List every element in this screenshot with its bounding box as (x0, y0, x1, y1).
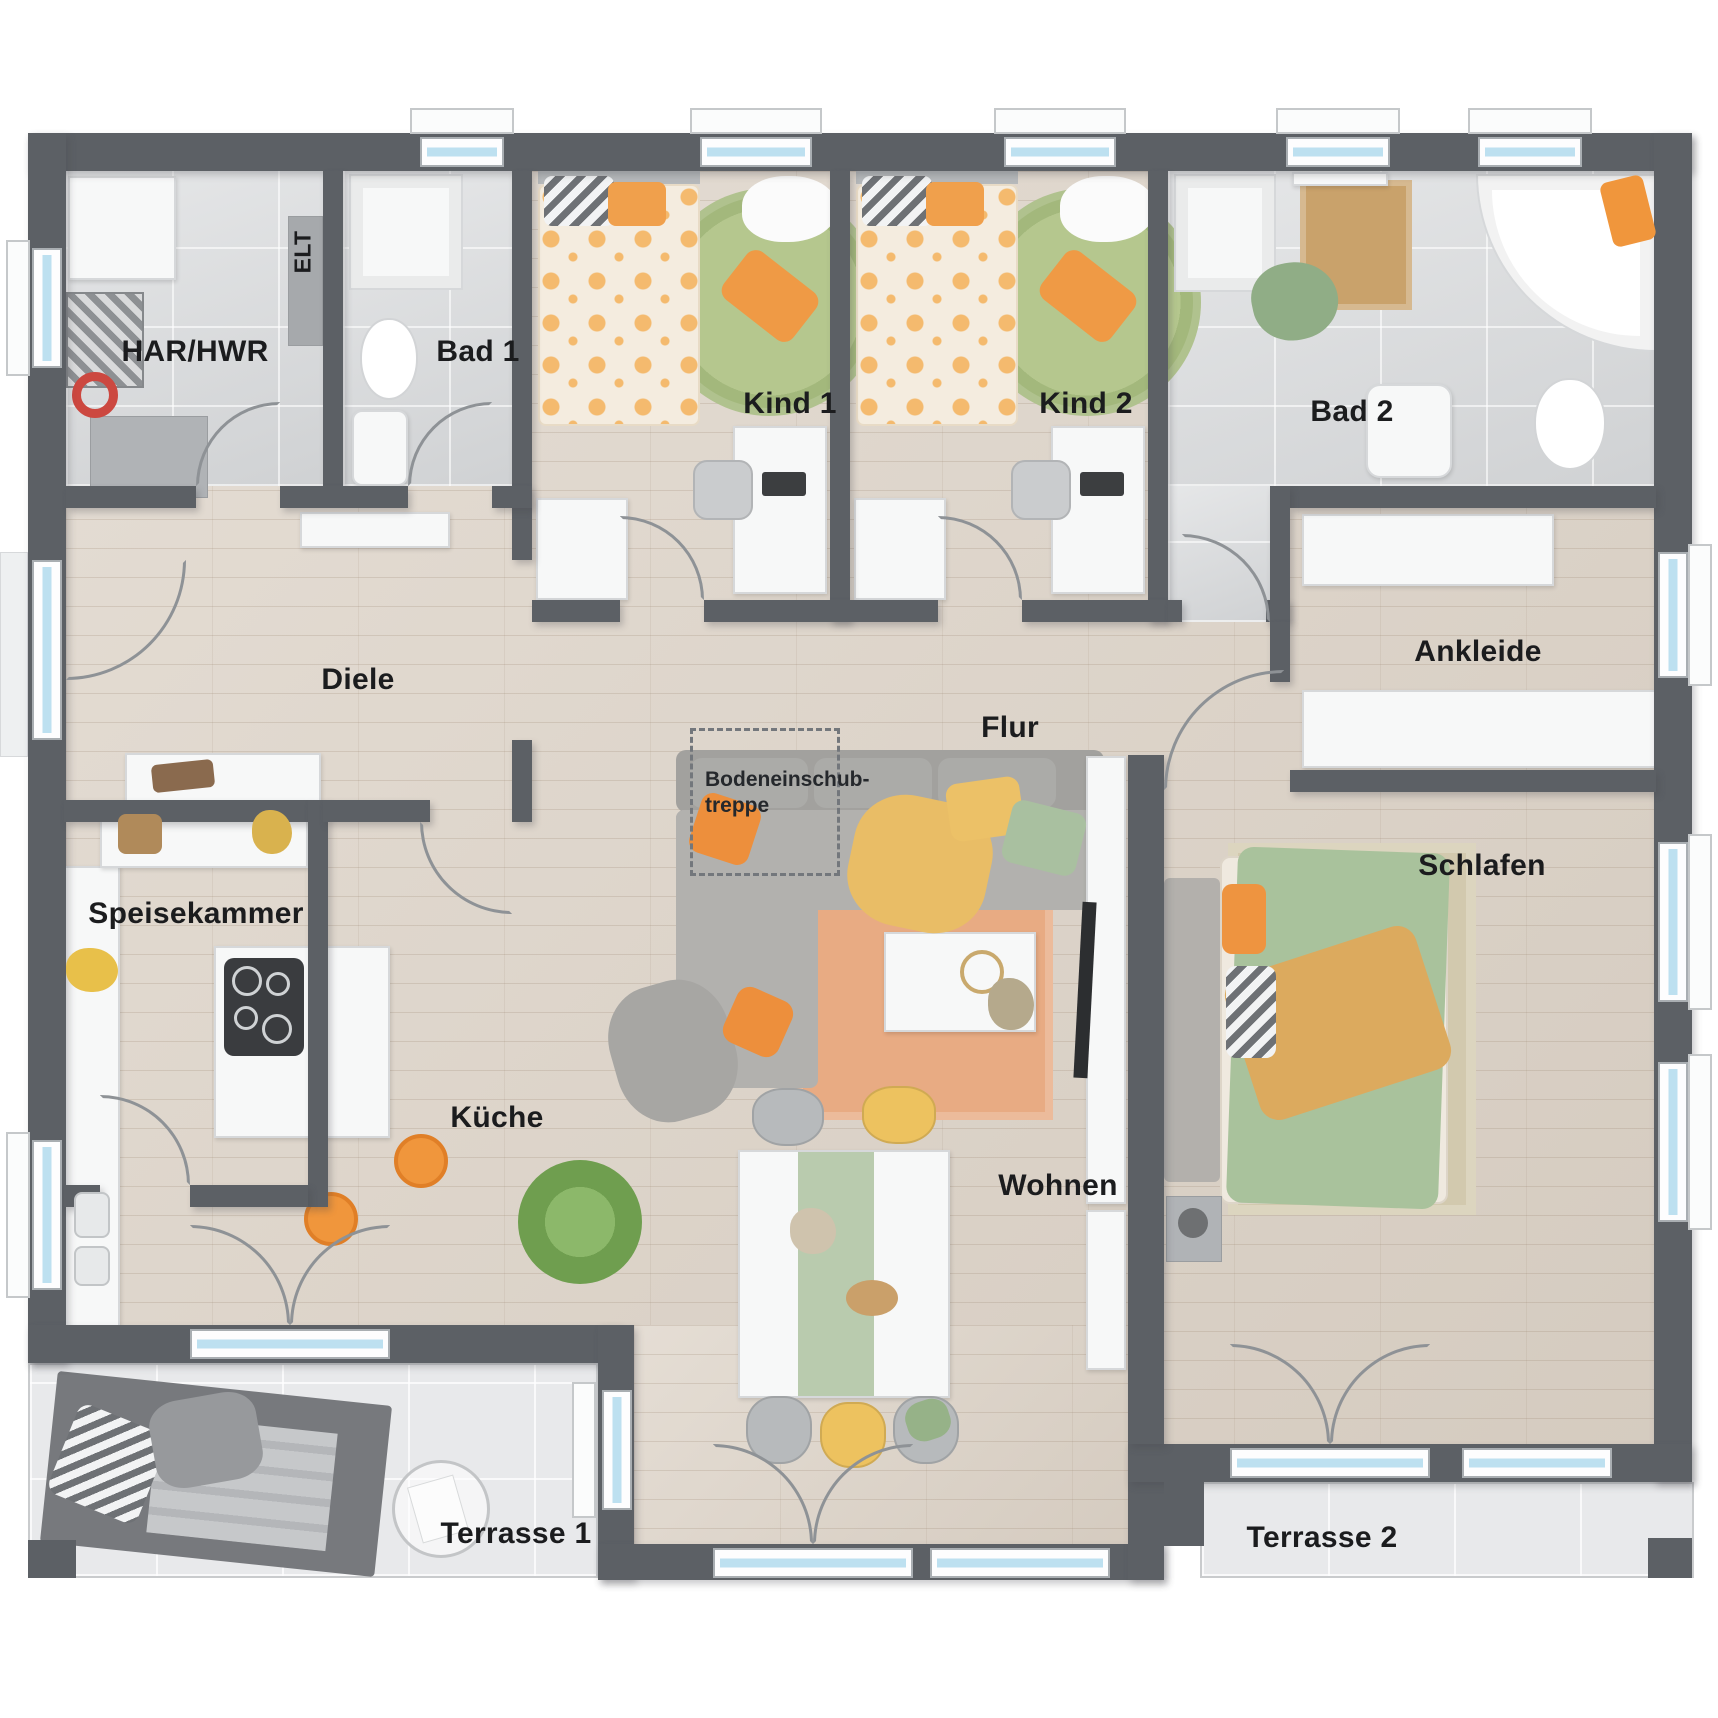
table-bowl (846, 1280, 898, 1316)
floor-plan: Bodeneinschub- treppe HAR/HWR ELT Bad 1 … (0, 0, 1718, 1718)
side-desk-wohnen (1086, 1210, 1126, 1370)
window-sill-bad2 (1276, 108, 1400, 134)
entry-porch (0, 552, 28, 757)
wall-bad2-bottom (1290, 486, 1656, 508)
dining-chair-gray-top (752, 1088, 824, 1146)
wall-hwr-bottom-a (66, 486, 196, 508)
wall-kind-bottom-a (532, 600, 620, 622)
room-label-diele: Diele (321, 663, 394, 697)
palm-plant (518, 1160, 642, 1284)
desk-chair-kind2 (1011, 460, 1071, 520)
french-door-kueche (190, 1329, 390, 1359)
wall-diele-stub (512, 740, 532, 822)
terrace1-corner-block (28, 1540, 76, 1578)
wall-vestibule-right (1270, 486, 1290, 622)
wall-kitchen-top (323, 800, 430, 822)
toilet-bad1 (360, 318, 418, 400)
fruit-bowl (66, 948, 118, 992)
shower-bad1 (349, 174, 463, 290)
plant-nightstand (1178, 1208, 1208, 1238)
keyboard-kind1 (762, 472, 806, 496)
window-sill-hwr (6, 240, 30, 376)
room-label-flur: Flur (981, 711, 1039, 745)
window-sill-kind2 (994, 108, 1126, 134)
window-bumpout-left (602, 1390, 632, 1510)
burner-1 (232, 966, 262, 996)
window-sill-bumpout-left (572, 1382, 596, 1518)
wall-outer-right (1654, 133, 1692, 1482)
terrace2-corner-block-right (1648, 1538, 1692, 1578)
room-label-terrasse1: Terrasse 1 (441, 1517, 592, 1551)
room-label-bad1: Bad 1 (436, 335, 519, 369)
bed-headboard-schlafen (1164, 878, 1220, 1182)
window-sill-kueche (6, 1132, 30, 1298)
room-label-bad2: Bad 2 (1310, 395, 1393, 429)
wall-bad1-bottom (492, 486, 532, 508)
window-sill-schlafen-1 (1688, 834, 1712, 1010)
pillow-orange-kind1 (608, 182, 666, 226)
diele-bench (300, 512, 450, 548)
pillow-orange-schlafen (1222, 884, 1266, 954)
pillow-striped-kind1 (544, 176, 614, 226)
wall-hwr-bad1 (323, 171, 343, 486)
window-sill-schlafen-2 (1688, 1054, 1712, 1230)
room-label-elt: ELT (290, 231, 317, 274)
window-schlafen-1 (1658, 842, 1688, 1002)
window-bad2 (1286, 137, 1390, 167)
room-label-kueche: Küche (450, 1101, 543, 1135)
room-label-ankleide: Ankleide (1414, 635, 1541, 669)
window-kind1 (700, 137, 812, 167)
window-kueche-left (32, 1140, 62, 1290)
window-sill-kind1 (690, 108, 822, 134)
wall-wohnen-schlafen (1128, 755, 1164, 1444)
window-sill-bad1 (410, 108, 514, 134)
wardrobe-kind1 (536, 498, 628, 600)
wall-vestibule-bottom-a (1168, 600, 1182, 622)
window-bad2-corner (1478, 137, 1582, 167)
terrace2-corner-block-left (1164, 1482, 1204, 1546)
kitchen-sink-bowl-1 (74, 1192, 110, 1238)
mop-bucket (72, 372, 118, 418)
pillow-gray-schlafen (1226, 966, 1276, 1058)
room-label-speisekammer: Speisekammer (88, 897, 303, 931)
wardrobe-ankleide-bottom (1302, 690, 1656, 768)
wardrobe-ankleide-top (1302, 514, 1554, 586)
window-schlafen-bottom (1462, 1448, 1612, 1478)
pantry-basket (118, 814, 162, 854)
dining-chair-yellow-top (862, 1086, 936, 1144)
washer-dryer (68, 176, 176, 280)
window-bad1 (420, 137, 504, 167)
room-label-terrasse2: Terrasse 2 (1247, 1521, 1398, 1555)
french-door-schlafen (1230, 1448, 1430, 1478)
window-schlafen-2 (1658, 1062, 1688, 1222)
pillow-orange-kind2 (926, 182, 984, 226)
room-label-har-hwr: HAR/HWR (121, 335, 268, 369)
window-sill-ankleide (1688, 544, 1712, 686)
room-label-kind1: Kind 1 (743, 387, 836, 421)
burner-3 (234, 1006, 258, 1030)
attic-stair-line2: treppe (705, 794, 769, 817)
table-runner (798, 1152, 874, 1396)
bar-stool-1 (394, 1134, 448, 1188)
coffee-table-plant (988, 978, 1034, 1030)
wall-outer-top (28, 133, 1692, 171)
wardrobe-kind2 (854, 498, 946, 600)
burner-4 (262, 1014, 292, 1044)
window-kind2 (1004, 137, 1116, 167)
wall-kind-bottom-c (1022, 600, 1168, 622)
toilet-bad2 (1534, 378, 1606, 470)
wall-kind-bottom-b (704, 600, 938, 622)
table-flowers (790, 1208, 836, 1254)
french-door-wohnen (713, 1548, 913, 1578)
attic-stair-annotation: Bodeneinschub- treppe (690, 728, 840, 876)
desk-chair-kind1 (693, 460, 753, 520)
sink-bad1 (352, 410, 408, 486)
window-wohnen-bottom (930, 1548, 1110, 1578)
room-label-schlafen: Schlafen (1418, 849, 1545, 883)
wall-hwr-bottom-b (280, 486, 408, 508)
pantry-flowers (252, 810, 292, 854)
window-ankleide (1658, 552, 1688, 678)
radiator-bad2 (1292, 172, 1388, 186)
pillow-striped-kind2 (862, 176, 932, 226)
wall-kind2-bad2 (1148, 171, 1168, 622)
wall-schlafen-top (1290, 770, 1656, 792)
wall-pantry-right (308, 800, 328, 1207)
kitchen-sink-bowl-2 (74, 1246, 110, 1286)
window-sill-bad2-corner (1468, 108, 1592, 134)
burner-2 (266, 972, 290, 996)
entry-door-glazed (32, 560, 62, 740)
keyboard-kind2 (1080, 472, 1124, 496)
attic-stair-line1: Bodeneinschub- (705, 768, 870, 791)
window-hwr (32, 248, 62, 368)
room-label-wohnen: Wohnen (998, 1169, 1118, 1203)
room-label-kind2: Kind 2 (1039, 387, 1132, 421)
wall-pantry-bottom-b (190, 1185, 308, 1207)
